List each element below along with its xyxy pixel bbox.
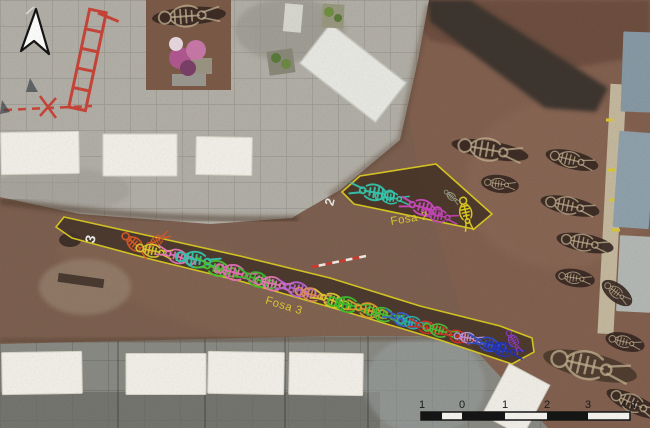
photo-grain-overlay [0,0,650,428]
orthophoto-canvas: Fosa 2 Fosa 3 2 3 101234 m [0,0,650,428]
orthophoto-figure: Fosa 2 Fosa 3 2 3 101234 m [0,0,650,428]
